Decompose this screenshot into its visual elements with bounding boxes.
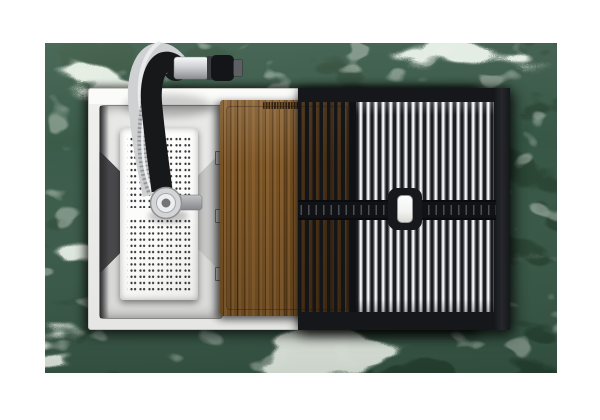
rack-handle-pad	[388, 188, 422, 230]
rack-frame-right	[494, 88, 510, 330]
colander-perforations-bottom	[127, 218, 191, 292]
handle-black-tip	[211, 55, 234, 81]
rack-frame-bottom	[298, 312, 510, 330]
rollup-drying-rack	[298, 88, 510, 330]
faucet	[110, 28, 260, 228]
brand-stamp	[263, 102, 300, 109]
rack-frame-top	[298, 88, 510, 102]
handle-end-cap	[234, 60, 243, 77]
faucet-spray-handle	[174, 57, 208, 79]
rack-handle	[397, 195, 413, 223]
product-photo-canvas	[0, 0, 600, 420]
bowl-left-shadow	[100, 106, 109, 318]
faucet-gooseneck-black	[151, 62, 180, 191]
sprayer-center	[162, 199, 171, 208]
